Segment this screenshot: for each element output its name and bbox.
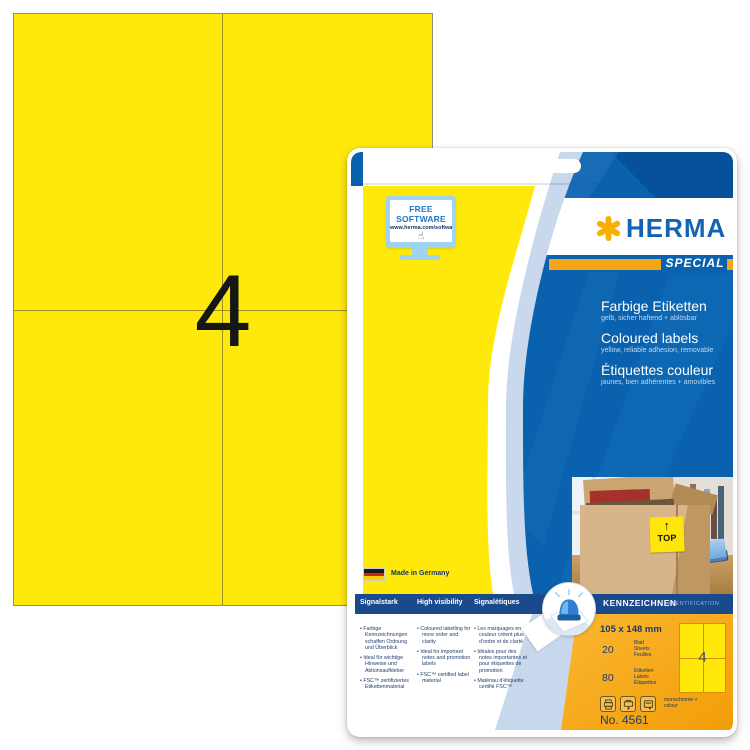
bullet: Ideal für wichtige Hinweise und Aktionsa…	[360, 655, 415, 674]
monitor-stand	[412, 248, 428, 255]
subtitle-de: gelb, sicher haftend + ablösbar	[601, 314, 733, 323]
sheet-units: Blatt Sheets Feuilles	[634, 641, 651, 658]
product-titles: Farbige Etiketten gelb, sicher haftend +…	[601, 298, 733, 394]
subtitle-en: yellow, reliable adhesion, removable	[601, 346, 733, 355]
bullet: Farbige Kennzeichnungen schaffen Ordnung…	[360, 626, 415, 651]
inkjet-printer-icon	[620, 696, 636, 712]
bullet: FSC™ certified label material	[417, 672, 472, 685]
category-title: KENNZEICHNEN	[603, 598, 677, 608]
free-software-title: FREE SOFTWARE	[390, 204, 452, 224]
sheet-label-count: 4	[173, 261, 273, 361]
label-count: 80	[602, 672, 614, 684]
application-photo: ↑ TOP	[572, 477, 733, 594]
column-header-en: High visibility	[417, 599, 463, 606]
bullet: Matériau d'étiquette certifié FSC™	[474, 678, 529, 691]
title-de: Farbige Etiketten	[601, 298, 733, 314]
cardboard-box	[580, 505, 710, 594]
made-in-label: Made in Germany	[391, 570, 449, 577]
unit-fr: Feuilles	[634, 653, 651, 659]
product-shot: 4	[0, 0, 750, 750]
column-header-de: Signalstark	[360, 599, 398, 606]
diagram-count: 4	[680, 649, 725, 666]
top-sticker: ↑ TOP	[649, 516, 684, 552]
bullet: Ideal for important notes and promotion …	[417, 649, 472, 668]
unit-fr: Étiquettes	[634, 681, 656, 687]
title-fr: Étiquettes couleur	[601, 362, 733, 378]
monitor-base	[400, 255, 440, 260]
bullet: FSC™ zertifiziertes Etikettenmaterial	[360, 678, 415, 691]
label-layout-diagram: 4	[679, 623, 726, 693]
label-units: Etiketten Labels Étiquettes	[634, 669, 656, 686]
bullet: Coloured labelling for more order and cl…	[417, 626, 472, 645]
package-card: FREE SOFTWARE www.herma.com/software ☝ H…	[347, 148, 737, 737]
bullets-fr: Les marquages en couleur créent plus d'o…	[474, 626, 529, 695]
arrow-up-icon: ↑	[649, 518, 683, 533]
category-subtitle: IDENTIFICATION	[669, 601, 719, 607]
printer-compatibility	[600, 696, 656, 712]
subtitle-fr: jaunes, bien adhérentes + amovibles	[601, 378, 733, 387]
special-badge: SPECIAL	[663, 255, 727, 272]
title-en: Coloured labels	[601, 330, 733, 346]
bullets-en: Coloured labelling for more order and cl…	[417, 626, 472, 688]
column-header-fr: Signalétiques	[474, 599, 520, 606]
print-note: monochrome + colour	[664, 697, 698, 709]
sheet-count: 20	[602, 644, 614, 656]
herma-logo: HERMA	[595, 212, 731, 244]
order-number: No. 4561	[600, 713, 649, 727]
beacon-icon	[542, 582, 596, 636]
brand-name: HERMA	[626, 213, 726, 244]
top-sticker-text: TOP	[650, 532, 684, 543]
hand-cursor-icon: ☝	[390, 232, 452, 242]
label-size: 105 x 148 mm	[600, 624, 662, 635]
laser-printer-icon	[600, 696, 616, 712]
copier-icon	[640, 696, 656, 712]
package-design: FREE SOFTWARE www.herma.com/software ☝ H…	[351, 152, 733, 733]
herma-asterisk-icon	[595, 215, 622, 242]
monitor-screen: FREE SOFTWARE www.herma.com/software ☝	[390, 200, 452, 242]
free-software-monitor: FREE SOFTWARE www.herma.com/software ☝	[386, 196, 456, 248]
bullet: Idéales pour des notes importantes et po…	[474, 649, 529, 674]
german-flag-icon	[363, 568, 385, 581]
bullets-de: Farbige Kennzeichnungen schaffen Ordnung…	[360, 626, 415, 695]
